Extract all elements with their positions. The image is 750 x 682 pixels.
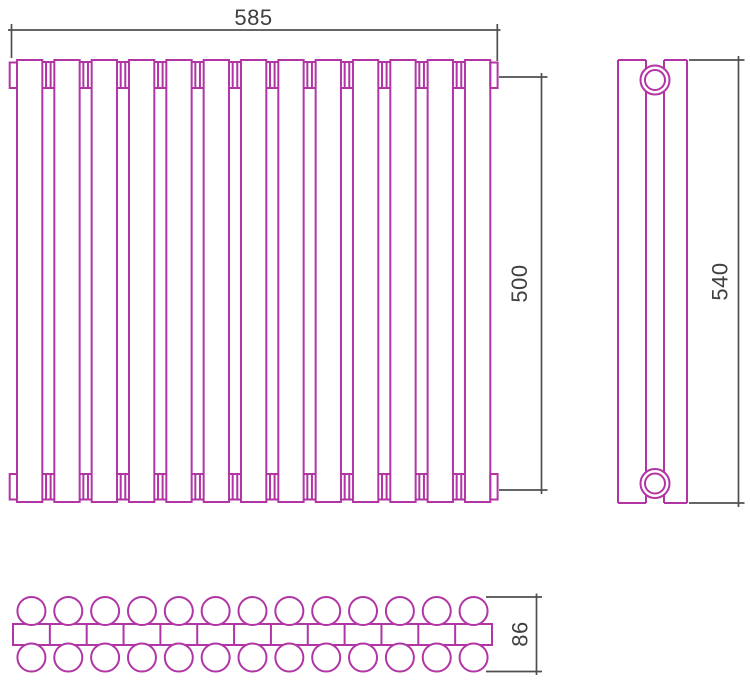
dimension-depth: 86 xyxy=(486,594,542,676)
dimension-width-label: 585 xyxy=(234,5,272,30)
dimension-overall-height: 540 xyxy=(689,56,745,507)
dimension-overall-height-label: 540 xyxy=(708,262,733,300)
top-view-cross-section xyxy=(13,597,492,672)
dimension-port-axial-height: 500 xyxy=(499,73,548,494)
radiator-technical-drawing: 585 500 540 86 xyxy=(0,0,750,682)
dimension-port-axial-height-label: 500 xyxy=(507,264,532,302)
dimension-depth-label: 86 xyxy=(508,621,533,646)
side-view xyxy=(618,60,687,503)
dimension-width: 585 xyxy=(8,5,501,61)
front-view xyxy=(10,60,498,502)
